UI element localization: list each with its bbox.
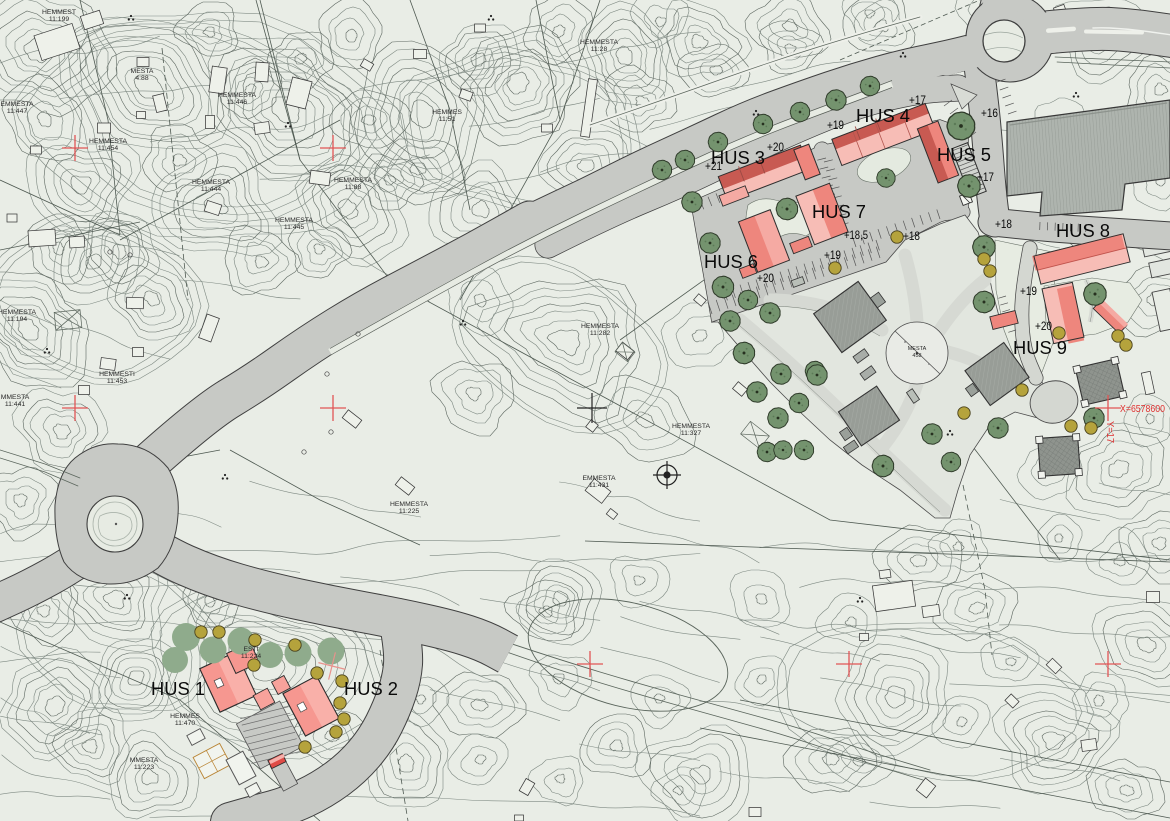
svg-text:ESTI: ESTI — [243, 646, 258, 653]
svg-text:HEMMESTA: HEMMESTA — [334, 177, 372, 184]
svg-text:11:327: 11:327 — [681, 430, 702, 437]
svg-text:+18,5: +18,5 — [844, 230, 868, 242]
svg-text:HUS 9: HUS 9 — [1013, 337, 1067, 358]
svg-text:HEMMESTI: HEMMESTI — [99, 371, 135, 378]
svg-text:+18: +18 — [903, 231, 920, 243]
svg-text:HEMMESTA: HEMMESTA — [0, 309, 36, 316]
svg-text:HUS 5: HUS 5 — [937, 144, 991, 165]
svg-text:11:199: 11:199 — [49, 16, 70, 23]
svg-text:MMESTA: MMESTA — [130, 757, 159, 764]
svg-text:HUS 4: HUS 4 — [856, 105, 910, 126]
svg-text:EMMESTA: EMMESTA — [0, 101, 34, 108]
svg-text:11:444: 11:444 — [201, 186, 222, 193]
svg-text:11:51: 11:51 — [439, 116, 456, 123]
svg-text:MESTA: MESTA — [908, 346, 927, 352]
svg-text:HEMMES: HEMMES — [432, 109, 462, 116]
svg-text:HUS 7: HUS 7 — [812, 201, 866, 222]
svg-text:+20: +20 — [767, 142, 784, 154]
svg-text:11:441: 11:441 — [5, 401, 26, 408]
svg-text:11:453: 11:453 — [107, 378, 128, 385]
svg-text:4:88: 4:88 — [135, 75, 148, 82]
svg-text:+16: +16 — [981, 108, 998, 120]
svg-text:+18: +18 — [995, 219, 1012, 231]
svg-text:11:282: 11:282 — [590, 330, 611, 337]
svg-text:11:28: 11:28 — [591, 46, 608, 53]
svg-text:X=6578600: X=6578600 — [1120, 403, 1165, 415]
svg-text:HEMMESTA: HEMMESTA — [275, 217, 313, 224]
svg-text:11:194: 11:194 — [7, 316, 28, 323]
svg-text:HEMMESTA: HEMMESTA — [580, 39, 618, 46]
svg-text:458: 458 — [912, 353, 921, 359]
svg-text:+20: +20 — [1035, 321, 1052, 333]
svg-text:+21: +21 — [705, 161, 722, 173]
svg-text:+19: +19 — [1020, 286, 1037, 298]
svg-text:EMMESTA: EMMESTA — [582, 475, 616, 482]
svg-text:11:225: 11:225 — [399, 508, 420, 515]
svg-text:HUS 6: HUS 6 — [704, 251, 758, 272]
svg-text:11:88: 11:88 — [345, 184, 362, 191]
svg-text:HUS 2: HUS 2 — [344, 678, 398, 699]
svg-text:HEMMESTA: HEMMESTA — [192, 179, 230, 186]
svg-text:11:447: 11:447 — [7, 108, 28, 115]
svg-text:HEMMEST: HEMMEST — [42, 9, 76, 16]
svg-text:11:431: 11:431 — [589, 482, 610, 489]
svg-text:11:445: 11:445 — [284, 224, 305, 231]
svg-text:MESTA: MESTA — [131, 68, 154, 75]
svg-text:+19: +19 — [824, 250, 841, 262]
svg-text:HEMMESTA: HEMMESTA — [581, 323, 619, 330]
svg-text:HEMMESTA: HEMMESTA — [218, 92, 256, 99]
svg-text:+17: +17 — [977, 172, 994, 184]
svg-text:HEMMESTA: HEMMESTA — [89, 138, 127, 145]
svg-text:HEMMESTA: HEMMESTA — [672, 423, 710, 430]
svg-text:11:454: 11:454 — [98, 145, 119, 152]
svg-text:11:446: 11:446 — [227, 99, 248, 106]
svg-text:11:470: 11:470 — [175, 720, 196, 727]
svg-text:11:223: 11:223 — [134, 764, 155, 771]
svg-text:+17: +17 — [909, 95, 926, 107]
svg-text:+19: +19 — [827, 120, 844, 132]
svg-text:HUS 8: HUS 8 — [1056, 220, 1110, 241]
svg-text:HEMMESTA: HEMMESTA — [390, 501, 428, 508]
svg-text:+20: +20 — [757, 273, 774, 285]
svg-text:HUS 1: HUS 1 — [151, 678, 205, 699]
svg-text:MMESTA: MMESTA — [1, 394, 30, 401]
svg-text:11:224: 11:224 — [241, 653, 262, 660]
svg-text:Y=17: Y=17 — [1104, 421, 1116, 443]
svg-text:HEMMES: HEMMES — [170, 713, 200, 720]
